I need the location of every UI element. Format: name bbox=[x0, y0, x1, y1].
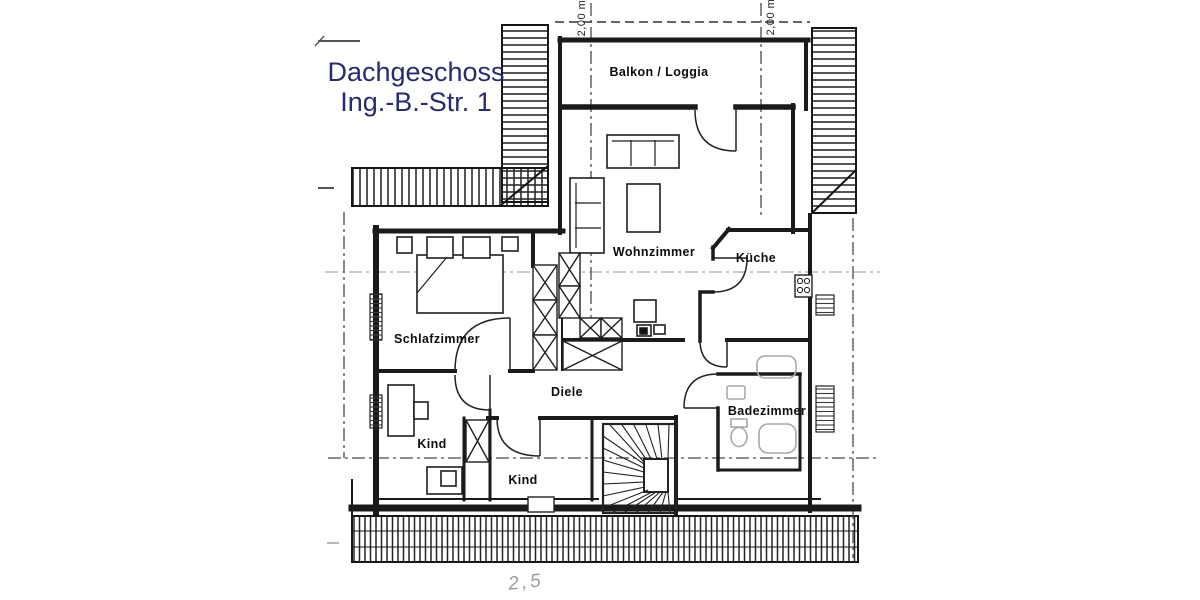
sink bbox=[727, 386, 745, 399]
desk-child1-corner bbox=[427, 467, 462, 494]
handwritten-note: 2,5 bbox=[507, 570, 545, 596]
roof-strip-upper-vertical bbox=[502, 25, 548, 202]
bottom-wall-niche bbox=[528, 497, 554, 512]
room-label-badezimmer: Badezimmer bbox=[728, 404, 806, 418]
stove bbox=[795, 275, 812, 297]
room-label-balkon: Balkon / Loggia bbox=[609, 65, 708, 79]
window-left-1 bbox=[370, 294, 382, 340]
stair-newel bbox=[644, 459, 668, 492]
coffee-table bbox=[627, 184, 660, 232]
sofa-top bbox=[607, 135, 679, 168]
balcony-door bbox=[695, 107, 736, 151]
window-right-kitchen bbox=[816, 295, 834, 315]
floor-plan-drawing bbox=[0, 0, 1200, 600]
hall-kitchen-door bbox=[700, 340, 727, 367]
dimension-label-right: 2,00 m bbox=[765, 0, 777, 35]
child1-door bbox=[455, 375, 490, 410]
sofa-left bbox=[570, 178, 604, 253]
floor-plan-page: Dachgeschoss Ing.-B.-Str. 1 Balkon / Log… bbox=[0, 0, 1200, 600]
toilet-tank bbox=[731, 419, 747, 427]
kitchen-left-wall bbox=[700, 247, 713, 341]
tv-unit bbox=[634, 300, 665, 336]
roof-strip-bottom-band bbox=[352, 516, 858, 562]
room-label-wohnzimmer: Wohnzimmer bbox=[613, 245, 695, 259]
dimension-label-left: 2,00 m bbox=[576, 0, 588, 36]
room-label-kind-2: Kind bbox=[508, 473, 537, 487]
bed bbox=[397, 237, 518, 313]
desk-child1 bbox=[388, 385, 428, 436]
roof-strip-top-right bbox=[812, 28, 856, 213]
bath-door bbox=[684, 374, 718, 408]
room-label-schlafzimmer: Schlafzimmer bbox=[394, 332, 480, 346]
winder-staircase bbox=[603, 424, 676, 513]
plan-title-line2: Ing.-B.-Str. 1 bbox=[327, 87, 504, 117]
plan-title-line1: Dachgeschoss bbox=[327, 57, 504, 87]
room-label-kind-1: Kind bbox=[417, 437, 446, 451]
room-label-kueche: Küche bbox=[736, 251, 776, 265]
bathtub-bottom bbox=[759, 424, 796, 453]
kitchen-top-wall bbox=[713, 229, 810, 248]
toilet-bowl bbox=[731, 428, 747, 447]
child2-door bbox=[497, 418, 540, 456]
plan-title: Dachgeschoss Ing.-B.-Str. 1 bbox=[327, 57, 504, 117]
room-label-diele: Diele bbox=[551, 385, 583, 399]
window-right-bath bbox=[816, 386, 834, 432]
window-left-2 bbox=[370, 395, 382, 428]
